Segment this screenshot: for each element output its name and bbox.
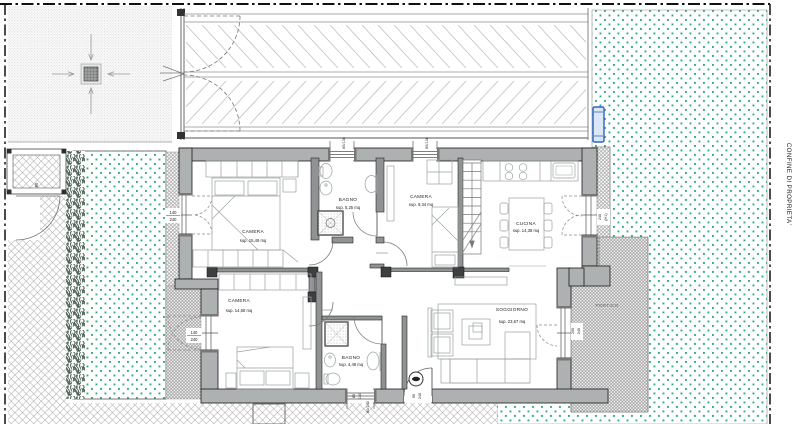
svg-text:CAMERA: CAMERA [242,229,264,234]
svg-text:PORTICO: PORTICO [596,303,619,308]
svg-text:240: 240 [577,328,581,334]
svg-text:240: 240 [170,217,178,222]
svg-text:sup. 5,25 mq: sup. 5,25 mq [336,205,361,210]
svg-text:sup. 9,34 mq: sup. 9,34 mq [409,202,434,207]
svg-text:85/138: 85/138 [342,137,346,149]
svg-text:CAMERA: CAMERA [410,194,432,199]
svg-text:80/140: 80/140 [366,401,370,413]
svg-text:140: 140 [191,330,199,335]
svg-text:240: 240 [191,337,199,342]
svg-text:CUCINA: CUCINA [516,221,536,226]
svg-text:90: 90 [34,182,39,187]
svg-text:SOGGIORNO: SOGGIORNO [496,307,528,312]
svg-text:sup. 14,38 mq: sup. 14,38 mq [513,228,540,233]
svg-text:BAGNO: BAGNO [342,355,360,360]
svg-text:BAGNO: BAGNO [339,197,357,202]
svg-text:240: 240 [418,393,422,399]
svg-text:sup. 4,48 mq: sup. 4,48 mq [339,362,364,367]
svg-text:140: 140 [358,393,362,399]
svg-text:85/138: 85/138 [425,137,429,149]
svg-text:CONFINE DI PROPRIETA': CONFINE DI PROPRIETA' [785,143,792,225]
svg-text:140: 140 [170,210,178,215]
svg-text:sup. 23,67 mq: sup. 23,67 mq [499,319,526,324]
svg-text:(H1): (H1) [604,213,608,221]
svg-text:90: 90 [412,394,416,398]
svg-text:sup. 14,58 mq: sup. 14,58 mq [226,308,253,313]
svg-text:CAMERA: CAMERA [228,298,250,303]
svg-text:80: 80 [352,394,356,398]
svg-text:240: 240 [598,214,602,220]
svg-text:sup. 15,49 mq: sup. 15,49 mq [240,238,267,243]
svg-text:200: 200 [571,328,575,334]
